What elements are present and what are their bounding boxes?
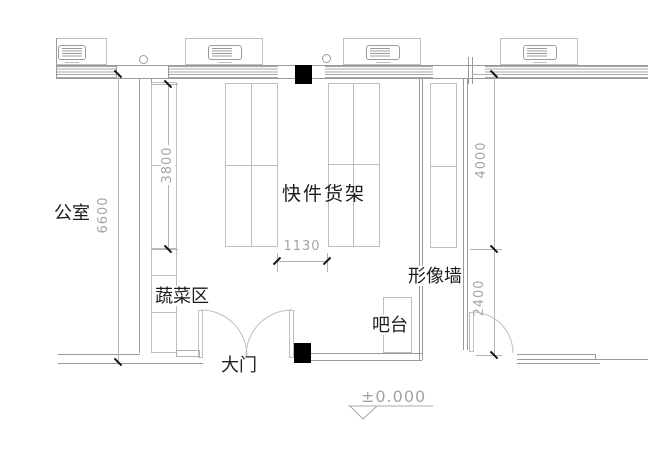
store-right-wall xyxy=(419,78,420,360)
vent-lines-icon xyxy=(212,48,232,57)
bottom-wall-pier xyxy=(176,350,200,357)
shelf-divider xyxy=(225,165,278,166)
grid-line-mark xyxy=(468,57,469,84)
dim-text-3800: 3800 xyxy=(161,145,175,185)
dim-text-2400: 2400 xyxy=(473,278,487,318)
image-wall-partition xyxy=(463,78,464,350)
column-bottom xyxy=(294,343,311,363)
dim-extension xyxy=(151,249,178,250)
elevation-value: ±0.000 xyxy=(361,387,426,406)
bottom-wall-office xyxy=(58,354,140,355)
shelf-divider xyxy=(151,312,177,313)
dim-extension xyxy=(277,253,278,272)
ceiling-unit-4 xyxy=(500,38,578,65)
bottom-wall-store xyxy=(311,353,422,354)
bottom-wall-right xyxy=(517,354,595,355)
window-band-segment xyxy=(56,66,116,78)
vent-lines-icon xyxy=(370,48,390,57)
side-door-swing-arc xyxy=(472,312,513,353)
grid-line-mark xyxy=(472,57,473,84)
store-right-wall xyxy=(422,78,423,360)
ceiling-unit-vent-box xyxy=(523,45,557,60)
bottom-wall-store-outer xyxy=(311,360,422,361)
elevation-triangle-icon xyxy=(350,406,377,419)
floor-plan: 6600 3800 1130 4000 2400 公室 快件货架 蔬菜区 大门 … xyxy=(0,0,650,460)
ceiling-unit-vent-box xyxy=(208,45,242,60)
top-wall-inner-edge xyxy=(56,78,648,79)
wall-joint xyxy=(168,65,169,78)
dim-extension xyxy=(327,253,328,272)
bottom-wall-office-outer xyxy=(58,363,203,364)
main-door-right-leaf xyxy=(289,310,294,358)
ceiling-unit-vent-box xyxy=(366,45,400,60)
dim-line-4000-2400 xyxy=(494,74,495,355)
wall-step xyxy=(595,354,596,360)
ceiling-unit-3 xyxy=(343,38,421,65)
label-main-door: 大门 xyxy=(221,355,257,375)
label-bar-counter: 吧台 xyxy=(371,315,409,335)
label-image-wall: 形像墙 xyxy=(407,266,463,286)
ceiling-unit-tail xyxy=(218,62,232,63)
dim-extension xyxy=(151,84,178,85)
dim-line-6600 xyxy=(118,74,119,362)
image-wall-partition xyxy=(467,78,468,350)
dim-extension xyxy=(472,74,502,75)
door-swing-arc-right xyxy=(246,310,292,356)
ceiling-unit-vent-box xyxy=(58,45,86,60)
ceiling-unit-2 xyxy=(185,38,263,65)
label-express-shelf: 快件货架 xyxy=(282,185,366,205)
vent-lines-icon xyxy=(62,48,82,57)
dim-line-1130 xyxy=(277,261,327,262)
dim-extension xyxy=(476,355,502,356)
ceiling-unit-tail xyxy=(65,62,79,63)
shelf-divider xyxy=(328,164,380,165)
window-band-segment xyxy=(325,66,433,78)
left-wall-edge xyxy=(56,38,57,79)
column-top xyxy=(295,65,312,84)
shelf-divider xyxy=(353,83,354,247)
side-door-leaf xyxy=(469,312,474,352)
ceiling-unit-tail xyxy=(376,62,390,63)
grid-bubble-icon xyxy=(322,54,331,63)
label-vegetable-area: 蔬菜区 xyxy=(154,286,210,306)
bottom-wall-right-outer xyxy=(517,359,648,360)
window-band-segment xyxy=(485,66,648,78)
label-office: 公室 xyxy=(54,203,90,223)
shelf-divider xyxy=(151,275,177,276)
vent-lines-icon xyxy=(527,48,547,57)
door-swing-arc-left xyxy=(201,310,247,356)
office-partition-wall xyxy=(139,78,140,353)
ceiling-unit-tail xyxy=(533,62,547,63)
grid-bubble-icon xyxy=(139,55,148,64)
bottom-wall-right-lower xyxy=(517,363,600,364)
shelf-divider xyxy=(430,166,457,167)
dim-text-6600: 6600 xyxy=(97,195,111,235)
main-door-left-leaf xyxy=(198,310,203,358)
window-band-segment xyxy=(168,66,278,78)
ceiling-unit-1 xyxy=(56,38,107,65)
dim-text-4000: 4000 xyxy=(475,140,489,180)
express-shelf-block-right xyxy=(328,83,380,247)
dim-text-1130: 1130 xyxy=(282,240,322,254)
